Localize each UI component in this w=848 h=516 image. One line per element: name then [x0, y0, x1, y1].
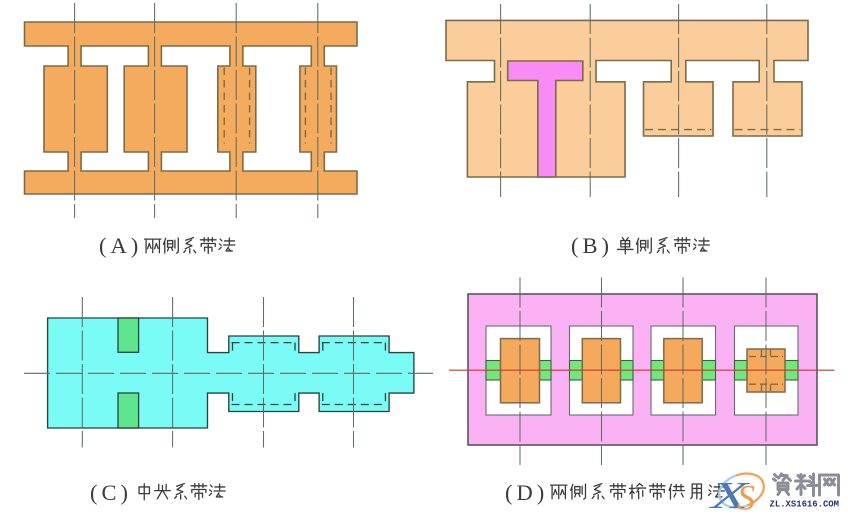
svg-text:(C): (C) [90, 480, 132, 505]
svg-text:(D): (D) [505, 480, 548, 505]
svg-text:S: S [737, 478, 755, 516]
svg-text:(A): (A) [99, 233, 142, 258]
svg-text:ZL.XS1616.COM: ZL.XS1616.COM [770, 499, 840, 510]
svg-text:(B): (B) [571, 233, 613, 258]
